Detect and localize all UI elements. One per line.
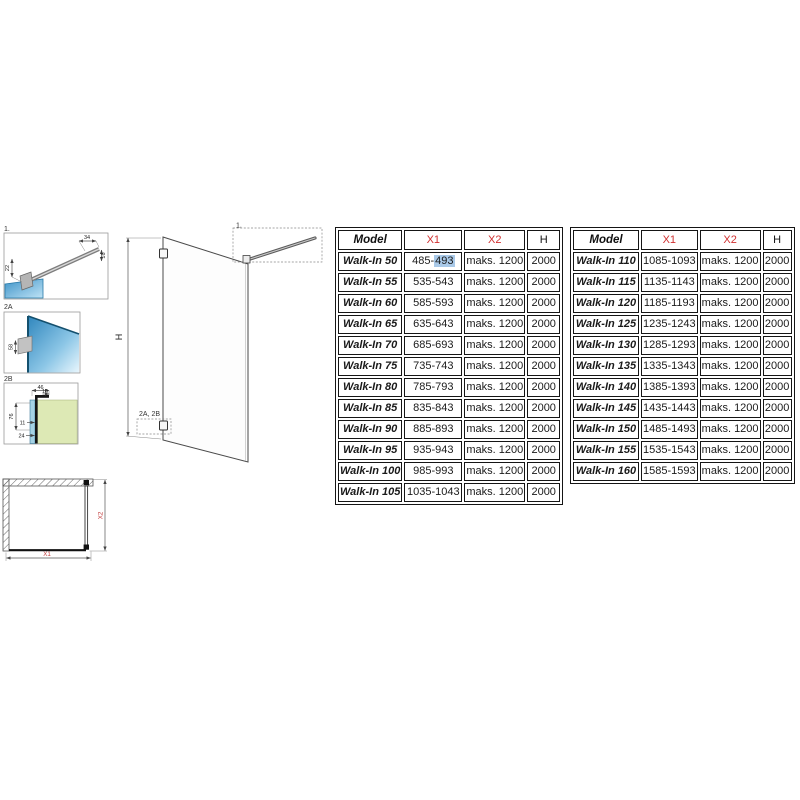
cell-x1: 485-493 xyxy=(404,252,462,271)
cell-x2: maks. 1200 xyxy=(464,273,525,292)
table-row: Walk-In 95935-943maks. 12002000 xyxy=(338,441,560,460)
cell-x1: 1035-1043 xyxy=(404,483,462,502)
table-row: Walk-In 50485-493maks. 12002000 xyxy=(338,252,560,271)
cell-model: Walk-In 70 xyxy=(338,336,402,355)
walk-in-table-50-105: ModelX1X2H Walk-In 50485-493maks. 120020… xyxy=(335,227,563,505)
cell-model: Walk-In 160 xyxy=(573,462,639,481)
cell-x1: 835-843 xyxy=(404,399,462,418)
cell-model: Walk-In 135 xyxy=(573,357,639,376)
detail-2a-wall-bracket: 2A 58 xyxy=(4,304,80,373)
cell-h: 2000 xyxy=(527,315,560,334)
cell-model: Walk-In 75 xyxy=(338,357,402,376)
table-row: Walk-In 1101085-1093maks. 12002000 xyxy=(573,252,792,271)
table-row: Walk-In 1301285-1293maks. 12002000 xyxy=(573,336,792,355)
table-row: Walk-In 55535-543maks. 12002000 xyxy=(338,273,560,292)
cell-x1: 585-593 xyxy=(404,294,462,313)
cell-model: Walk-In 150 xyxy=(573,420,639,439)
cell-h: 2000 xyxy=(527,441,560,460)
glass-panel xyxy=(163,237,248,462)
side-wall xyxy=(3,479,9,551)
walk-in-table-110-160: ModelX1X2H Walk-In 1101085-1093maks. 120… xyxy=(570,227,795,484)
table-row: Walk-In 1351335-1343maks. 12002000 xyxy=(573,357,792,376)
profile-horizontal xyxy=(35,395,49,398)
table-row: Walk-In 1051035-1043maks. 12002000 xyxy=(338,483,560,502)
detail-2a-label: 2A xyxy=(4,304,13,311)
cell-x1: 1535-1543 xyxy=(641,441,698,460)
cell-x1: 1335-1343 xyxy=(641,357,698,376)
technical-drawing: 1. 34 16 22 2A 58 2B 46 xyxy=(0,220,330,580)
cell-x1: 935-943 xyxy=(404,441,462,460)
cell-x2: maks. 1200 xyxy=(464,420,525,439)
cell-h: 2000 xyxy=(527,462,560,481)
cell-h: 2000 xyxy=(763,378,792,397)
dim-22: 22 xyxy=(5,265,11,271)
cell-x1: 535-543 xyxy=(404,273,462,292)
cell-x1: 1435-1443 xyxy=(641,399,698,418)
table-header-row: ModelX1X2H xyxy=(338,230,560,250)
cell-model: Walk-In 145 xyxy=(573,399,639,418)
bottom-fixing xyxy=(84,545,89,550)
table-row: Walk-In 1451435-1443maks. 12002000 xyxy=(573,399,792,418)
cell-h: 2000 xyxy=(763,420,792,439)
cell-x1: 1235-1243 xyxy=(641,315,698,334)
cell-h: 2000 xyxy=(527,336,560,355)
back-wall xyxy=(3,479,93,486)
cell-x2: maks. 1200 xyxy=(700,420,761,439)
table-row: Walk-In 1501485-1493maks. 12002000 xyxy=(573,420,792,439)
cell-x1: 635-643 xyxy=(404,315,462,334)
cell-model: Walk-In 125 xyxy=(573,315,639,334)
cell-x1: 735-743 xyxy=(404,357,462,376)
cell-x1: 1385-1393 xyxy=(641,378,698,397)
dim-H: H xyxy=(114,334,124,341)
cell-x2: maks. 1200 xyxy=(700,315,761,334)
cell-x2: maks. 1200 xyxy=(464,462,525,481)
dimensions-table-large-sizes: ModelX1X2H Walk-In 1101085-1093maks. 120… xyxy=(570,227,795,484)
dim-11: 11 xyxy=(20,421,26,427)
cell-model: Walk-In 85 xyxy=(338,399,402,418)
cell-model: Walk-In 155 xyxy=(573,441,639,460)
table-row: Walk-In 1201185-1193maks. 12002000 xyxy=(573,294,792,313)
cell-x1: 1585-1593 xyxy=(641,462,698,481)
cell-x2: maks. 1200 xyxy=(464,315,525,334)
table-row: Walk-In 80785-793maks. 12002000 xyxy=(338,378,560,397)
detail-2b-label: 2B xyxy=(4,376,13,383)
cell-h: 2000 xyxy=(763,462,792,481)
cell-model: Walk-In 130 xyxy=(573,336,639,355)
bar-glass-bracket xyxy=(243,256,250,264)
cell-x2: maks. 1200 xyxy=(700,399,761,418)
cell-h: 2000 xyxy=(527,357,560,376)
table-row: Walk-In 75735-743maks. 12002000 xyxy=(338,357,560,376)
profile-vertical xyxy=(35,397,38,443)
support-bar-highlight xyxy=(247,238,315,260)
cell-model: Walk-In 100 xyxy=(338,462,402,481)
cell-x1: 1485-1493 xyxy=(641,420,698,439)
cell-h: 2000 xyxy=(763,441,792,460)
table-row: Walk-In 70685-693maks. 12002000 xyxy=(338,336,560,355)
table-row: Walk-In 1151135-1143maks. 12002000 xyxy=(573,273,792,292)
cell-x1: 1085-1093 xyxy=(641,252,698,271)
cell-x1: 1185-1193 xyxy=(641,294,698,313)
cell-x2: maks. 1200 xyxy=(464,378,525,397)
cell-x2: maks. 1200 xyxy=(700,336,761,355)
cell-x1: 985-993 xyxy=(404,462,462,481)
cell-model: Walk-In 50 xyxy=(338,252,402,271)
detail-2b-profile-section: 2B 46 10 76 11 24 xyxy=(4,376,78,444)
dim-16: 16 xyxy=(101,252,107,258)
cell-h: 2000 xyxy=(527,378,560,397)
table-row: Walk-In 60585-593maks. 12002000 xyxy=(338,294,560,313)
dim-X1: X1 xyxy=(43,551,51,558)
cell-x2: maks. 1200 xyxy=(700,273,761,292)
col-header-x2: X2 xyxy=(464,230,525,250)
cell-x2: maks. 1200 xyxy=(464,294,525,313)
lower-wall-bracket xyxy=(160,421,168,430)
cell-h: 2000 xyxy=(763,357,792,376)
cell-x2: maks. 1200 xyxy=(700,357,761,376)
cell-x2: maks. 1200 xyxy=(464,357,525,376)
col-header-model: Model xyxy=(573,230,639,250)
cell-model: Walk-In 120 xyxy=(573,294,639,313)
cell-x2: maks. 1200 xyxy=(464,336,525,355)
table-header-row: ModelX1X2H xyxy=(573,230,792,250)
cell-x1: 685-693 xyxy=(404,336,462,355)
cell-model: Walk-In 55 xyxy=(338,273,402,292)
detail-1-label: 1. xyxy=(4,226,10,233)
cell-h: 2000 xyxy=(527,399,560,418)
col-header-x1: X1 xyxy=(404,230,462,250)
dim-24: 24 xyxy=(18,434,24,440)
cell-x1: 1285-1293 xyxy=(641,336,698,355)
dim-76: 76 xyxy=(9,413,15,419)
table-row: Walk-In 90885-893maks. 12002000 xyxy=(338,420,560,439)
cell-model: Walk-In 140 xyxy=(573,378,639,397)
detail-1-support-bar: 1. 34 16 22 xyxy=(4,226,108,299)
cell-h: 2000 xyxy=(763,294,792,313)
cell-x1: 885-893 xyxy=(404,420,462,439)
col-header-h: H xyxy=(527,230,560,250)
selected-text: 493 xyxy=(434,255,454,267)
cell-x2: maks. 1200 xyxy=(700,294,761,313)
cell-h: 2000 xyxy=(527,294,560,313)
cell-h: 2000 xyxy=(763,315,792,334)
cell-model: Walk-In 95 xyxy=(338,441,402,460)
cell-h: 2000 xyxy=(763,252,792,271)
col-header-x2: X2 xyxy=(700,230,761,250)
cell-h: 2000 xyxy=(527,420,560,439)
ref-label-1: 1. xyxy=(236,223,242,230)
wall-bracket xyxy=(18,336,32,354)
cell-model: Walk-In 60 xyxy=(338,294,402,313)
cell-model: Walk-In 115 xyxy=(573,273,639,292)
table-row: Walk-In 1251235-1243maks. 12002000 xyxy=(573,315,792,334)
cell-h: 2000 xyxy=(763,399,792,418)
wall-section xyxy=(38,400,78,444)
cell-x1: 785-793 xyxy=(404,378,462,397)
table-row: Walk-In 1551535-1543maks. 12002000 xyxy=(573,441,792,460)
cell-x1: 1135-1143 xyxy=(641,273,698,292)
col-header-h: H xyxy=(763,230,792,250)
cell-model: Walk-In 65 xyxy=(338,315,402,334)
cell-x2: maks. 1200 xyxy=(464,441,525,460)
cell-h: 2000 xyxy=(763,273,792,292)
cell-x2: maks. 1200 xyxy=(700,462,761,481)
cell-model: Walk-In 80 xyxy=(338,378,402,397)
upper-wall-bracket xyxy=(160,249,168,258)
top-fixing xyxy=(84,480,89,485)
cell-h: 2000 xyxy=(527,483,560,502)
dimensions-table-small-sizes: ModelX1X2H Walk-In 50485-493maks. 120020… xyxy=(335,227,563,505)
table-row: Walk-In 1401385-1393maks. 12002000 xyxy=(573,378,792,397)
dim-10: 10 xyxy=(42,389,48,395)
cell-model: Walk-In 110 xyxy=(573,252,639,271)
cell-h: 2000 xyxy=(527,252,560,271)
cell-model: Walk-In 105 xyxy=(338,483,402,502)
plan-view-drawing: X2 X1 xyxy=(3,479,107,561)
cell-x2: maks. 1200 xyxy=(464,483,525,502)
table-row: Walk-In 100985-993maks. 12002000 xyxy=(338,462,560,481)
col-header-x1: X1 xyxy=(641,230,698,250)
dim-58: 58 xyxy=(9,344,15,350)
ref-label-2a-2b: 2A, 2B xyxy=(139,411,160,418)
table-row: Walk-In 65635-643maks. 12002000 xyxy=(338,315,560,334)
glass-panel-plan xyxy=(85,486,88,549)
cell-x2: maks. 1200 xyxy=(700,252,761,271)
cell-model: Walk-In 90 xyxy=(338,420,402,439)
table-row: Walk-In 85835-843maks. 12002000 xyxy=(338,399,560,418)
cell-x2: maks. 1200 xyxy=(700,441,761,460)
dim-X2: X2 xyxy=(98,511,105,519)
cell-h: 2000 xyxy=(527,273,560,292)
cell-x2: maks. 1200 xyxy=(700,378,761,397)
cell-x2: maks. 1200 xyxy=(464,252,525,271)
elevation-drawing: H 1. 2A, 2B xyxy=(114,223,322,463)
glass-section xyxy=(30,400,35,444)
dim-34: 34 xyxy=(84,235,90,241)
cell-x2: maks. 1200 xyxy=(464,399,525,418)
table-row: Walk-In 1601585-1593maks. 12002000 xyxy=(573,462,792,481)
cell-h: 2000 xyxy=(763,336,792,355)
col-header-model: Model xyxy=(338,230,402,250)
